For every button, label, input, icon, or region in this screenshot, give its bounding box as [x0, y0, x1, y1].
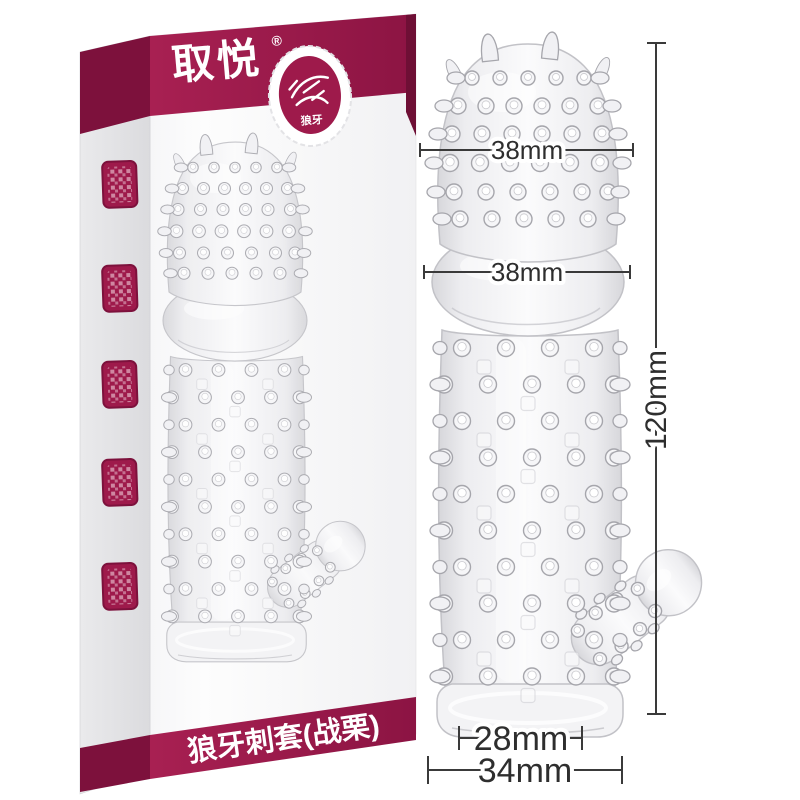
dimension-base-width: 34mm — [428, 752, 622, 790]
brand-logo: 取悦 — [170, 34, 264, 89]
dimension-label-glans: 38mm — [491, 257, 563, 287]
dimension-label-head: 38mm — [491, 135, 563, 165]
box-side-panel — [80, 36, 150, 794]
badge-label: 狼牙 — [300, 112, 323, 128]
dimension-label-length: 120mm — [640, 350, 673, 450]
seal-stamp — [102, 361, 138, 408]
seal-stamp — [102, 161, 138, 208]
product-box: 取悦 ® 狼牙 狼牙刺套(战栗) — [80, 14, 416, 794]
product-image-canvas: 取悦 ® 狼牙 狼牙刺套(战栗) — [0, 0, 800, 800]
registered-mark: ® — [271, 32, 283, 49]
seal-stamp — [102, 459, 138, 506]
seal-stamp — [102, 265, 138, 312]
dimension-label-base: 34mm — [478, 752, 572, 790]
product-photo: 取悦 ® 狼牙 狼牙刺套(战栗) — [0, 0, 800, 800]
seal-stamp — [102, 563, 138, 610]
